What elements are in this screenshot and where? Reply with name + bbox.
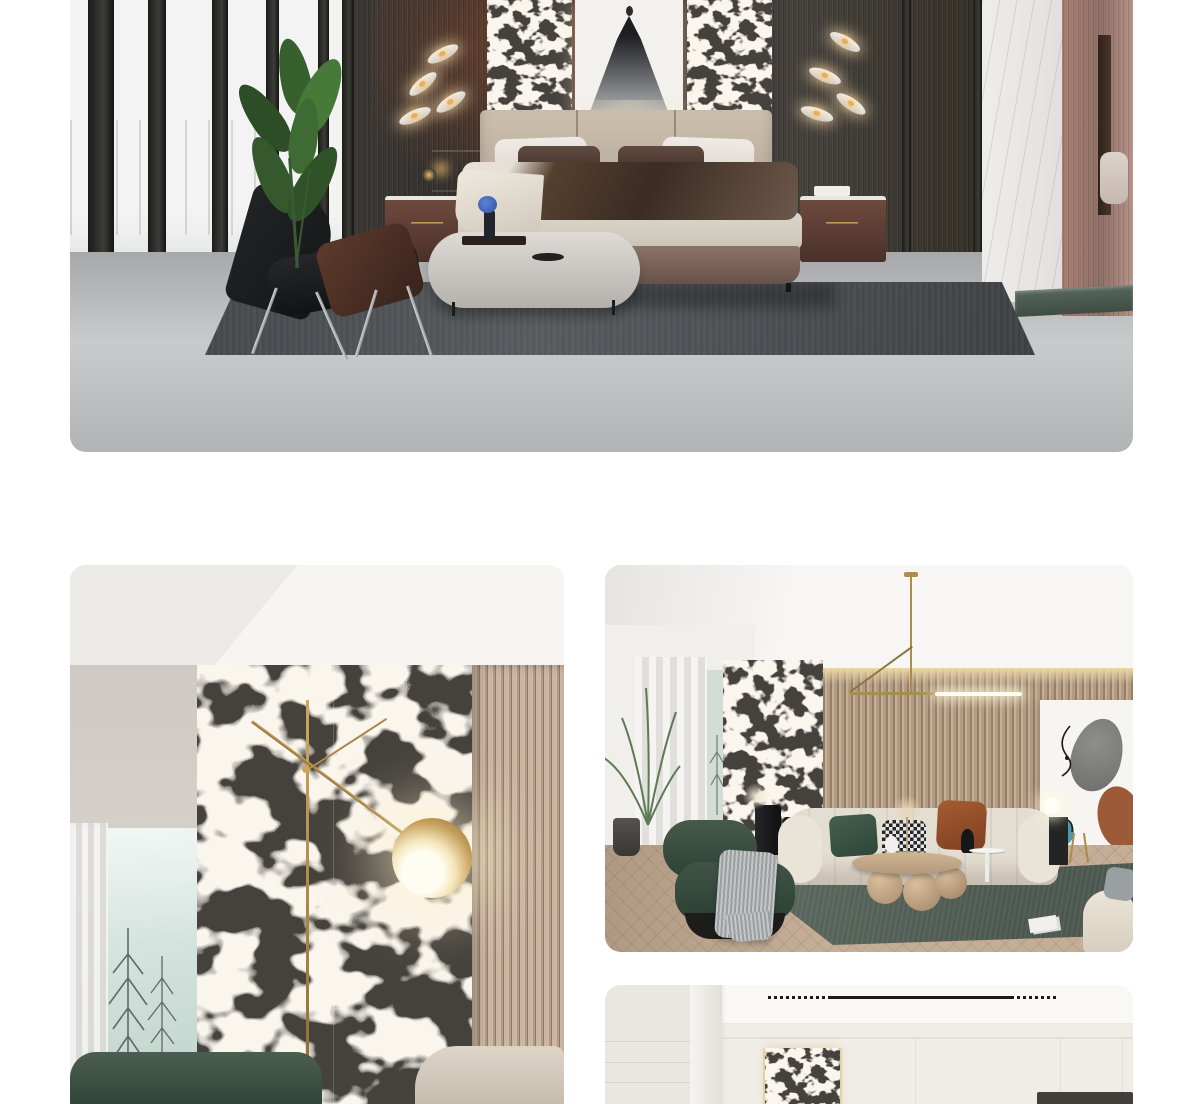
palm-plant [605,660,683,830]
drawer-handle [411,222,443,224]
sheet-drape [454,169,544,237]
dark-furniture-strip [1037,1092,1133,1104]
art-figure-head [626,6,633,16]
gallery-image-marble-closeup[interactable] [70,565,564,1104]
grey-pillow [1103,866,1133,902]
gallery-image-living-room[interactable] [605,565,1133,952]
marble-panel-left [487,0,572,118]
white-jug [885,836,898,853]
throw-tail [726,911,773,943]
wood-slat-panel [472,665,564,1104]
ac-vent-dotted [768,996,828,999]
panel-joint [915,1039,916,1104]
shower-glass-wall [1062,0,1133,316]
lamp-globe [392,818,472,898]
marble-panel-right [687,0,772,118]
gold-starburst-decor [422,168,436,182]
nightstand-right [800,196,886,262]
marble-inset-slab [765,1048,840,1104]
blue-flower [478,196,497,213]
sphere-lamp [1043,797,1060,814]
plinth-black [1049,817,1068,865]
marble-column-white [982,0,1062,302]
disc-light [807,64,843,88]
tray-dish [532,253,564,261]
white-marble-veins [982,0,1062,302]
disc-light [406,68,440,99]
shelf-unit [605,985,690,1104]
disc-light [397,104,433,129]
ottoman-bench [428,232,640,308]
disc-pendant-cluster-left [398,48,473,143]
basin [1100,152,1128,204]
lamp-joint [302,765,310,773]
marble-slab-seam [333,665,334,1104]
potted-plant [240,38,360,268]
drawer-handle [826,222,858,224]
pendant-light-tube [935,692,1022,696]
disc-light [434,88,469,117]
gallery-image-panelled-room[interactable] [605,985,1133,1104]
bench-leg [612,300,615,315]
shelf-line [605,1041,690,1042]
beige-sofa-arm [415,1046,564,1104]
side-table-stem [985,852,989,882]
disc-light [799,103,835,125]
disc-pendant-cluster-right [798,36,873,141]
gallery-image-bedroom[interactable] [70,0,1133,452]
ceiling-soffit [70,565,564,667]
moulding-line [722,1037,1133,1039]
wall-column [690,985,722,1104]
pendant-rod [910,575,912,695]
ac-vent-dotted [1017,996,1059,999]
shelf-line [605,1082,690,1083]
shelf-line [605,1062,690,1063]
bed-leg [786,283,791,292]
bench-leg [452,302,455,316]
disc-light [834,90,869,119]
towel-stack [814,186,850,196]
blue-flower-vase [484,210,495,238]
sofa-pillow-green [829,813,879,857]
coffee-table-top [852,852,962,874]
serving-tray [462,236,526,245]
green-sofa-back [70,1052,322,1104]
decor-stem [906,817,908,853]
ac-vent-slot [828,996,1014,999]
pampas-puff [743,783,769,809]
ceiling [70,565,564,667]
